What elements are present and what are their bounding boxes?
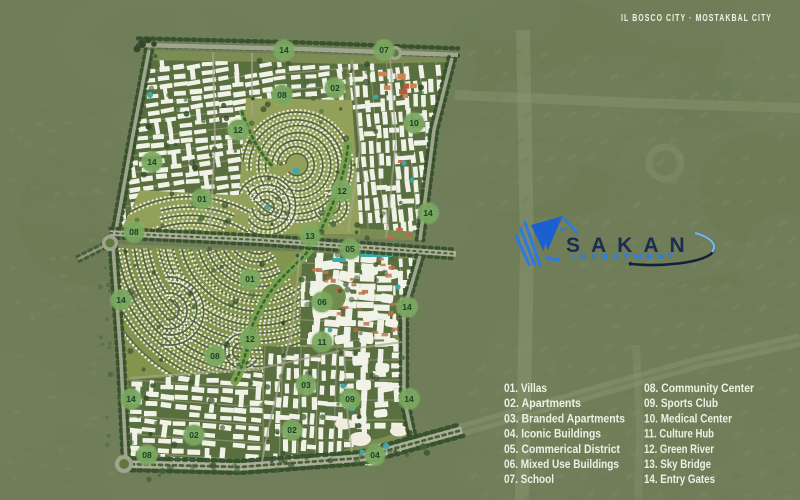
svg-text:02: 02 (189, 430, 199, 440)
svg-text:09: 09 (345, 394, 355, 404)
svg-text:08: 08 (210, 351, 220, 361)
svg-text:04: 04 (370, 450, 380, 460)
svg-text:08: 08 (277, 90, 287, 100)
svg-text:01: 01 (197, 194, 207, 204)
svg-text:05. Commerical District: 05. Commerical District (504, 442, 620, 456)
svg-text:14: 14 (279, 45, 289, 55)
svg-text:07: 07 (379, 45, 389, 55)
svg-text:08: 08 (129, 227, 139, 237)
svg-text:10: 10 (409, 118, 419, 128)
svg-text:05: 05 (345, 244, 355, 254)
svg-text:02. Apartments: 02. Apartments (504, 396, 581, 410)
svg-text:06: 06 (317, 297, 327, 307)
svg-text:08: 08 (142, 450, 152, 460)
svg-text:08. Community Center: 08. Community Center (644, 381, 754, 395)
svg-text:06. Mixed Use Buildings: 06. Mixed Use Buildings (504, 457, 619, 471)
svg-text:13. Sky Bridge: 13. Sky Bridge (644, 457, 711, 471)
svg-text:03: 03 (301, 380, 311, 390)
svg-text:12: 12 (233, 125, 243, 135)
svg-text:11. Culture Hub: 11. Culture Hub (644, 427, 714, 441)
svg-text:12: 12 (337, 186, 347, 196)
svg-text:09. Sports Club: 09. Sports Club (644, 396, 718, 410)
svg-text:07. School: 07. School (504, 472, 554, 486)
svg-text:14. Entry Gates: 14. Entry Gates (644, 472, 715, 486)
svg-text:01: 01 (245, 274, 255, 284)
svg-text:14: 14 (126, 394, 136, 404)
svg-text:13: 13 (305, 231, 315, 241)
svg-text:IL BOSCO CITY · MOSTAKBAL CITY: IL BOSCO CITY · MOSTAKBAL CITY (621, 13, 772, 24)
svg-text:10. Medical Center: 10. Medical Center (644, 411, 732, 425)
svg-text:14: 14 (404, 394, 414, 404)
svg-text:12. Green River: 12. Green River (644, 442, 714, 456)
svg-text:INVESTMENT: INVESTMENT (573, 252, 679, 261)
svg-text:02: 02 (287, 425, 297, 435)
svg-text:14: 14 (423, 208, 433, 218)
svg-text:14: 14 (147, 157, 157, 167)
svg-text:11: 11 (318, 337, 327, 347)
svg-text:12: 12 (245, 334, 255, 344)
svg-text:03. Branded Apartments: 03. Branded Apartments (504, 411, 625, 425)
svg-text:02: 02 (330, 83, 340, 93)
svg-text:01. Villas: 01. Villas (504, 381, 547, 395)
svg-text:14: 14 (402, 302, 412, 312)
svg-text:04. Iconic Buildings: 04. Iconic Buildings (504, 427, 601, 441)
svg-text:14: 14 (116, 295, 126, 305)
